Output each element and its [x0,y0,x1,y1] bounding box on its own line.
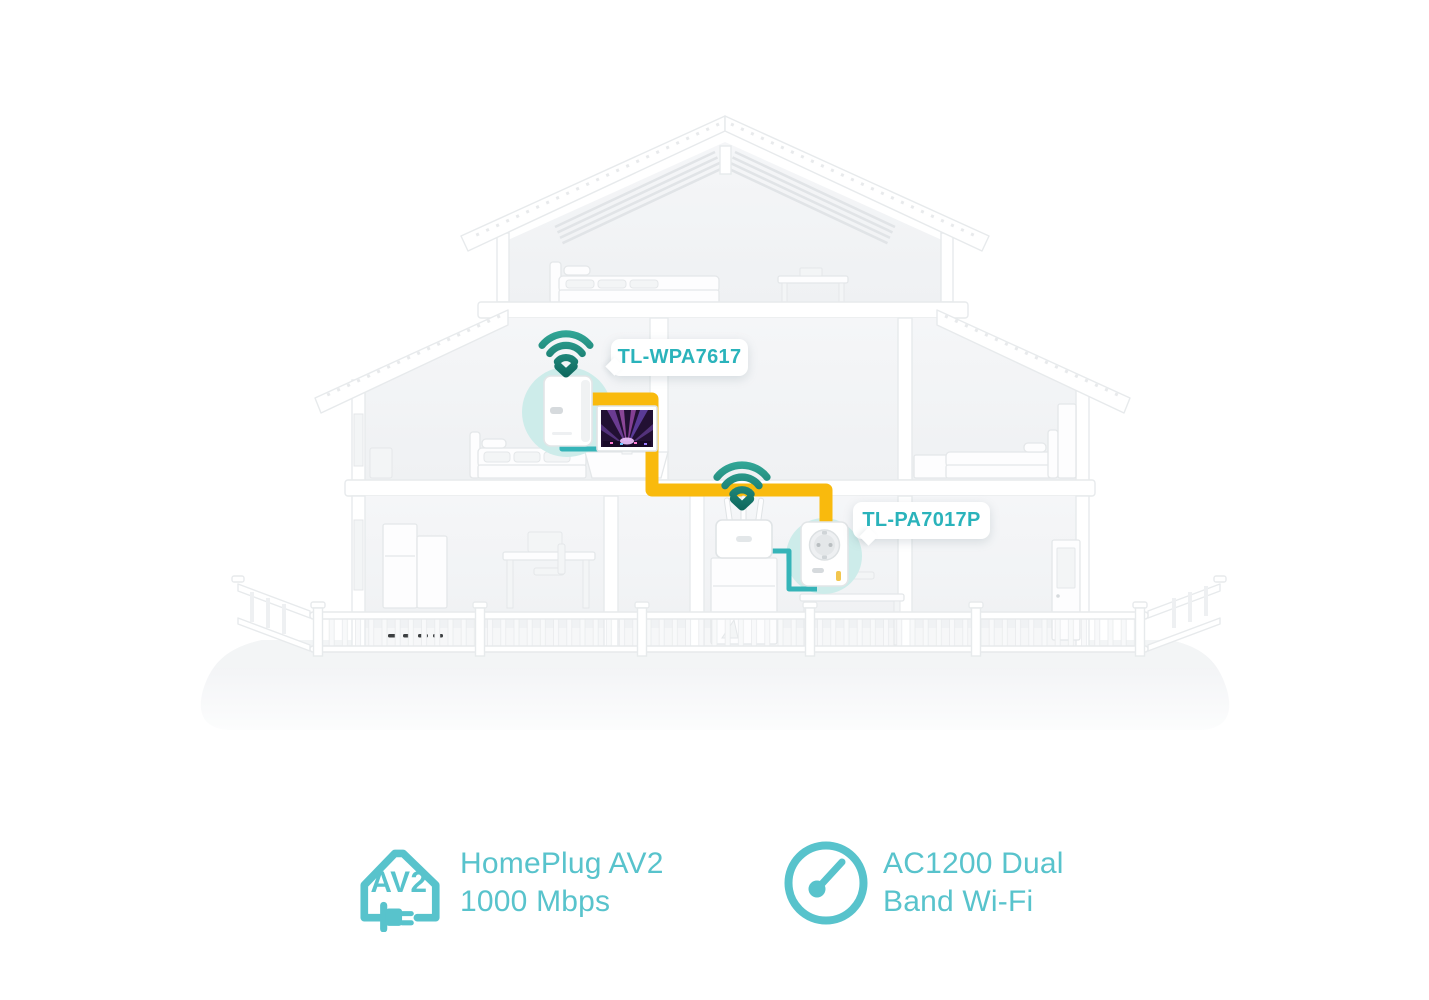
wardrobe [1058,404,1076,478]
bed-right-pillow [1024,443,1046,452]
extender-label: TL-WPA7617 [618,346,742,369]
feature-ac1200-wifi: AC1200 Dual Band Wi-Fi [781,838,1064,928]
feature-line: Band Wi-Fi [883,883,1064,921]
attic-floor [461,116,989,318]
powerline-extender-device [544,376,592,446]
tp-link-logo [812,568,824,573]
window-left-middle [354,414,363,466]
tp-link-logo [550,407,563,414]
fence-bottom-rail [310,646,1148,652]
fence-right-wrap [1148,576,1226,651]
attic-slab [478,302,968,318]
feature-homeplug-av2: AV2 HomePlug AV2 1000 Mbps [350,834,664,932]
powerline-adapter-device [801,522,848,586]
plug-icon [384,905,412,928]
attic-wall-left [497,233,509,302]
bed-right-headboard [1048,430,1058,478]
fence-top-rail [310,612,1148,619]
ground-platform [201,640,1229,730]
house [315,116,1130,648]
speedometer-icon [781,838,871,928]
homeplug-av2-house-plug-icon: AV2 [350,834,448,932]
attic-wall-right [941,233,953,302]
window-left-ground [354,520,363,590]
powerline-home-diagram: TL-WPA7617 TL-PA7017P AV2 HomePlug AV2 1… [0,0,1429,1000]
bed-right-base [946,465,1052,478]
fence-left-wrap [232,576,310,651]
radiator [370,448,392,478]
ridge-post [720,146,731,174]
feature-line: 1000 Mbps [460,883,664,921]
interior-wall-middle-2 [898,318,912,480]
callout-adapter: TL-PA7017P [853,502,990,539]
fence-pickets [312,619,1146,646]
low-cabinet [914,455,948,478]
adapter-label: TL-PA7017P [862,509,980,532]
feature-line: HomePlug AV2 [460,845,664,883]
av2-badge-text: AV2 [371,866,428,899]
fridge [383,524,447,608]
house-illustration [0,0,1429,1000]
adapter-led [836,571,841,581]
tv [597,406,657,454]
feature-line: AC1200 Dual [883,845,1064,883]
callout-extender: TL-WPA7617 [611,339,748,376]
